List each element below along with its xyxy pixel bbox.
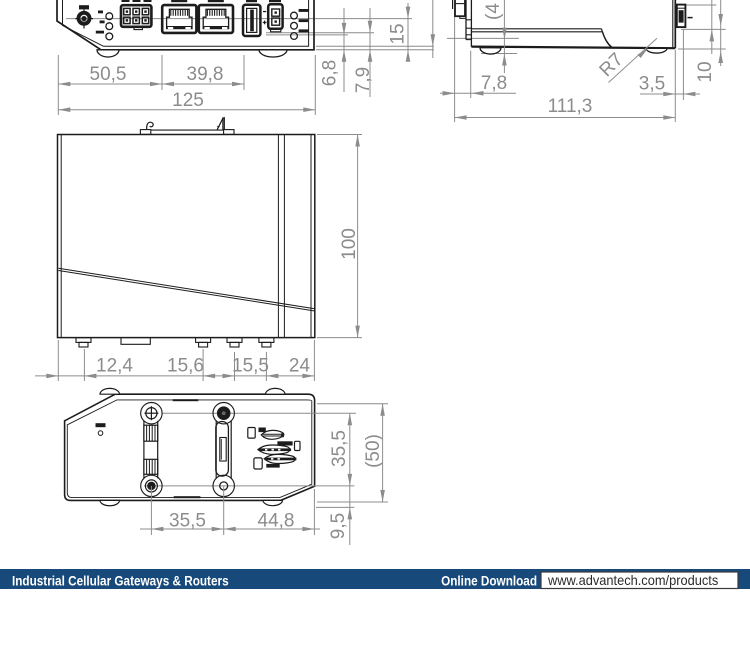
svg-text:39,8: 39,8: [187, 64, 224, 85]
svg-text:125: 125: [172, 90, 204, 111]
svg-text:12,4: 12,4: [96, 356, 133, 377]
svg-text:(4: (4: [483, 3, 504, 20]
svg-text:24: 24: [289, 356, 311, 377]
svg-text:15,5: 15,5: [232, 356, 269, 377]
svg-text:7,8: 7,8: [481, 73, 507, 94]
svg-text:Online Download: Online Download: [441, 572, 537, 588]
svg-text:50,5: 50,5: [90, 64, 127, 85]
svg-text:7,9: 7,9: [353, 67, 374, 93]
svg-text:Industrial Cellular Gateways &: Industrial Cellular Gateways & Routers: [12, 572, 229, 588]
svg-text:9,5: 9,5: [328, 513, 349, 539]
svg-text:www.advantech.com/products: www.advantech.com/products: [547, 573, 719, 588]
svg-text:35,5: 35,5: [169, 511, 206, 532]
svg-text:35,5: 35,5: [329, 430, 350, 467]
svg-text:100: 100: [339, 228, 360, 260]
svg-text:44,8: 44,8: [258, 511, 295, 532]
svg-text:3,5: 3,5: [639, 74, 665, 95]
svg-text:15,6: 15,6: [167, 356, 204, 377]
svg-text:10: 10: [695, 61, 716, 82]
svg-text:6,8: 6,8: [320, 60, 341, 86]
svg-text:(50): (50): [363, 434, 384, 468]
svg-text:15: 15: [388, 23, 409, 44]
svg-text:111,3: 111,3: [548, 96, 593, 117]
